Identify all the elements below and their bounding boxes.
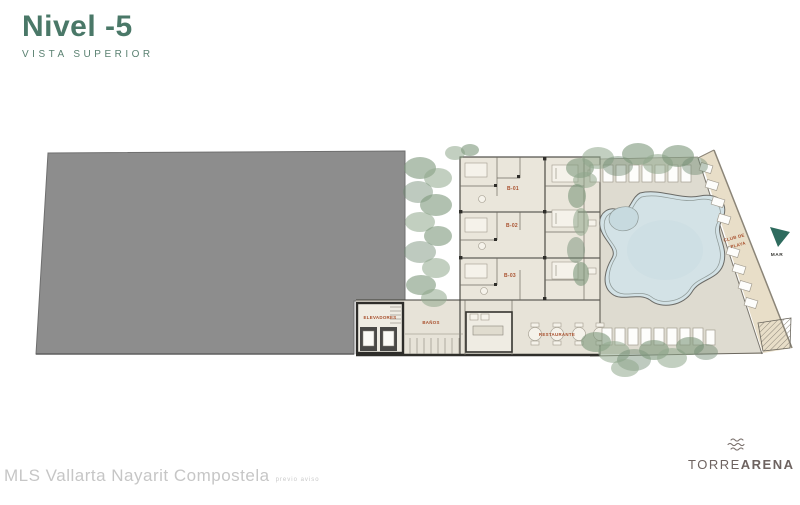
brand-logo: TORREARENA xyxy=(688,437,788,472)
brand-name: TORREARENA xyxy=(688,457,788,472)
unit-label-b03: B-03 xyxy=(504,273,516,279)
restaurant-label: RESTAURANTE xyxy=(539,332,575,337)
watermark-text: MLS Vallarta Nayarit Compostela xyxy=(4,466,270,485)
floor-plan: B-01 B-02 B-03 ELEVADORES BAÑOS RESTAURA… xyxy=(0,0,800,500)
brand-name-light: TORRE xyxy=(688,457,741,472)
watermark: MLS Vallarta Nayarit Compostelaprevio av… xyxy=(4,466,320,486)
waves-icon xyxy=(724,437,752,453)
unit-label-b02: B-02 xyxy=(506,223,518,229)
elevators-label: ELEVADORES xyxy=(364,315,397,320)
pool-lagoon xyxy=(609,207,638,231)
bathrooms-label: BAÑOS xyxy=(422,320,439,325)
unit-label-b01: B-01 xyxy=(507,186,519,192)
hatched-corner xyxy=(758,318,791,351)
kitchen xyxy=(466,312,512,352)
sea-arrow-icon xyxy=(770,227,790,247)
parking-slab xyxy=(36,151,405,354)
sea-label: MAR xyxy=(771,252,783,258)
brand-name-bold: ARENA xyxy=(741,457,795,472)
watermark-note: previo aviso xyxy=(276,477,320,483)
elevator-block xyxy=(357,303,403,353)
